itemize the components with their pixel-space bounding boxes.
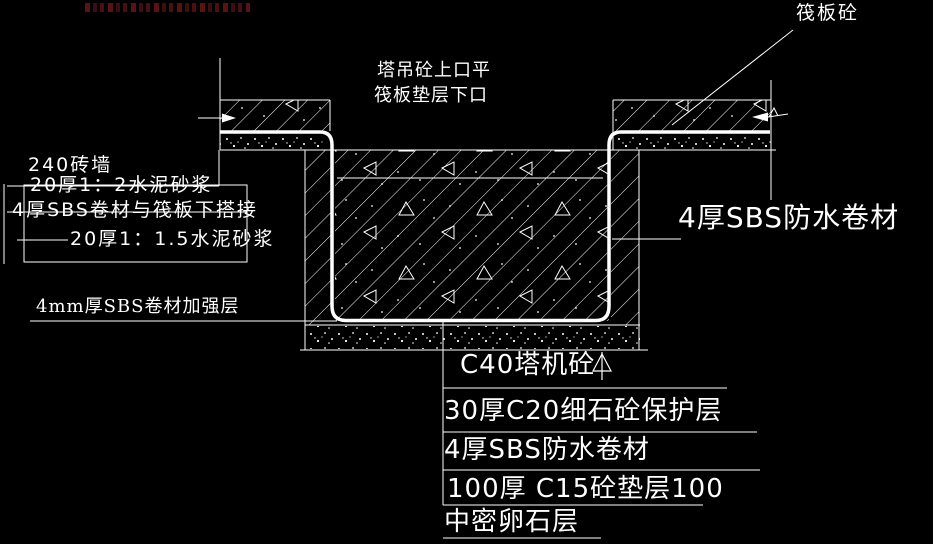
label-raft-slab: 筏板砼 xyxy=(796,4,859,24)
label-c15-cushion: 100厚 C15砼垫层100 xyxy=(447,476,724,503)
label-level-note-line2: 筏板垫层下口 xyxy=(374,87,488,106)
label-reinforcement: 4mm厚SBS卷材加强层 xyxy=(36,298,239,317)
label-brick-wall: 240砖墙 xyxy=(28,156,112,176)
right-cushion-stipple xyxy=(615,135,771,149)
wall-layers-box xyxy=(24,185,247,262)
left-raft-slab-hatch xyxy=(220,100,330,132)
left-cushion-stipple xyxy=(220,135,324,149)
crane-foundation-concrete-hatch xyxy=(335,150,609,321)
label-membrane-side: 4厚SBS防水卷材 xyxy=(678,203,899,232)
label-mortar-1-1-5: 20厚1：1.5水泥砂浆 xyxy=(70,230,274,250)
left-protection-wall-hatch xyxy=(305,150,332,325)
right-protection-wall-hatch xyxy=(611,150,639,325)
drawing-canvas[interactable]: 筏板砼 塔吊砼上口平 筏板垫层下口 240砖墙 20厚1：2水泥砂浆 4厚SBS… xyxy=(0,0,933,544)
label-pebble-layer: 中密卵石层 xyxy=(444,509,579,536)
label-protection-layer: 30厚C20细石砼保护层 xyxy=(444,398,722,425)
elevation-marker-icon xyxy=(593,352,611,380)
label-mortar-1-2: 20厚1：2水泥砂浆 xyxy=(30,176,212,196)
label-c40-concrete: C40塔机砼 xyxy=(460,352,595,379)
right-raft-slab-hatch xyxy=(613,100,771,132)
label-sbs-lap: 4厚SBS卷材与筏板下搭接 xyxy=(12,201,258,221)
watermark-marks xyxy=(85,3,250,12)
label-level-note-line1: 塔吊砼上口平 xyxy=(377,62,491,81)
bottom-cushion-stipple xyxy=(305,326,640,349)
label-waterproof-membrane: 4厚SBS防水卷材 xyxy=(444,437,650,464)
